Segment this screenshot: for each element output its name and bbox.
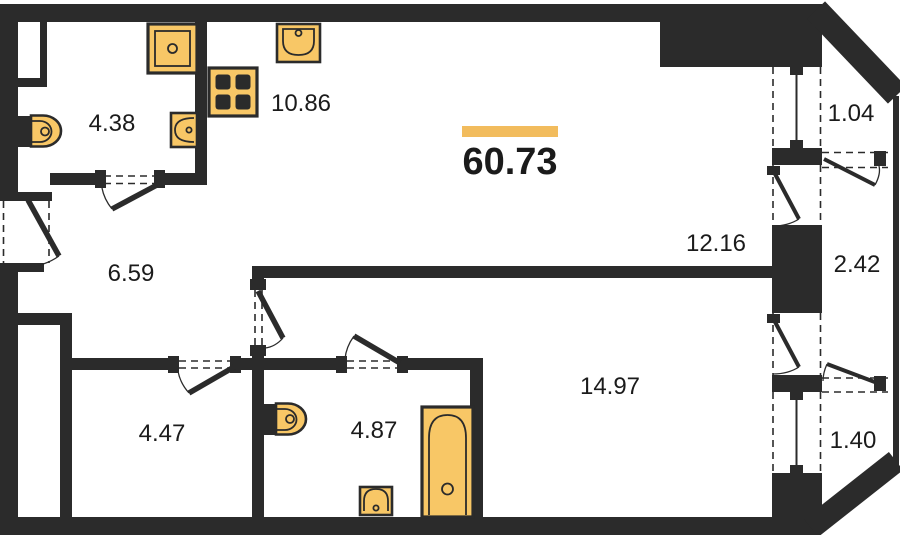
window-mullion xyxy=(790,140,803,148)
floor-plan-drawing: 60.73 4.38 10.86 6.59 12.16 4.47 4.87 14… xyxy=(0,0,900,535)
room-area-bathroom-top: 4.38 xyxy=(89,110,136,137)
toilet-cistern xyxy=(18,116,31,147)
door-jamb xyxy=(0,263,44,272)
niche-bottom-wall xyxy=(18,78,47,87)
wall-left-lower xyxy=(0,272,18,535)
balcony-area-lower: 1.40 xyxy=(830,427,877,454)
stove xyxy=(209,68,257,116)
bedroom-wall-lower xyxy=(252,347,264,517)
shaft-top-wall xyxy=(18,313,72,325)
east-wall-block-bottom xyxy=(772,473,822,519)
window-mullion xyxy=(790,67,803,75)
kitchen-sink xyxy=(277,24,320,62)
lower-wall-middle xyxy=(237,358,343,370)
lower-wall-left xyxy=(72,358,175,370)
window-mullion xyxy=(790,465,803,473)
hallway-top-wall-left xyxy=(50,173,102,185)
partition-mullion xyxy=(874,151,886,166)
toilet-cistern xyxy=(263,404,276,435)
room-area-storage: 4.47 xyxy=(139,420,186,447)
door-jamb xyxy=(168,356,179,373)
room-area-kitchen: 10.86 xyxy=(271,90,331,117)
washbasin-bottom xyxy=(360,487,392,515)
door-jamb xyxy=(0,192,52,201)
door-jamb xyxy=(95,170,106,188)
washbasin-top xyxy=(171,113,197,147)
room-area-bathroom-bottom: 4.87 xyxy=(351,417,398,444)
east-wall-sill-bottom xyxy=(772,375,822,392)
shower-tray xyxy=(148,24,197,73)
east-wall-block-middle xyxy=(772,225,822,313)
total-area-highlight-bar xyxy=(462,126,558,137)
total-area-label: 60.73 xyxy=(462,141,557,183)
room-area-hallway: 6.59 xyxy=(108,260,155,287)
wall-left-upper xyxy=(0,4,18,192)
wall-top xyxy=(0,4,822,22)
balcony-area-upper: 1.04 xyxy=(828,100,875,127)
bathtub xyxy=(422,407,473,517)
hallway-top-wall-right xyxy=(160,173,207,185)
east-wall-sill-top xyxy=(772,148,822,165)
living-bottom-wall xyxy=(252,266,772,278)
wall-top-right-block xyxy=(660,22,822,67)
floor-plan: 60.73 4.38 10.86 6.59 12.16 4.47 4.87 14… xyxy=(0,0,900,535)
lower-wall-right xyxy=(403,358,483,370)
toilet-bottom xyxy=(263,404,306,436)
door-jamb xyxy=(250,345,266,356)
room-area-bedroom: 14.97 xyxy=(580,373,640,400)
door-jamb xyxy=(250,279,266,290)
niche-right-wall xyxy=(40,22,47,80)
room-area-living-room: 12.16 xyxy=(686,230,746,257)
shaft-right-wall xyxy=(60,325,72,517)
wall-bottom xyxy=(0,517,820,535)
toilet-top xyxy=(18,116,61,148)
balcony-area-middle: 2.42 xyxy=(834,251,881,278)
balcony-outer-glazing-line xyxy=(893,96,899,472)
window-mullion xyxy=(790,392,803,400)
